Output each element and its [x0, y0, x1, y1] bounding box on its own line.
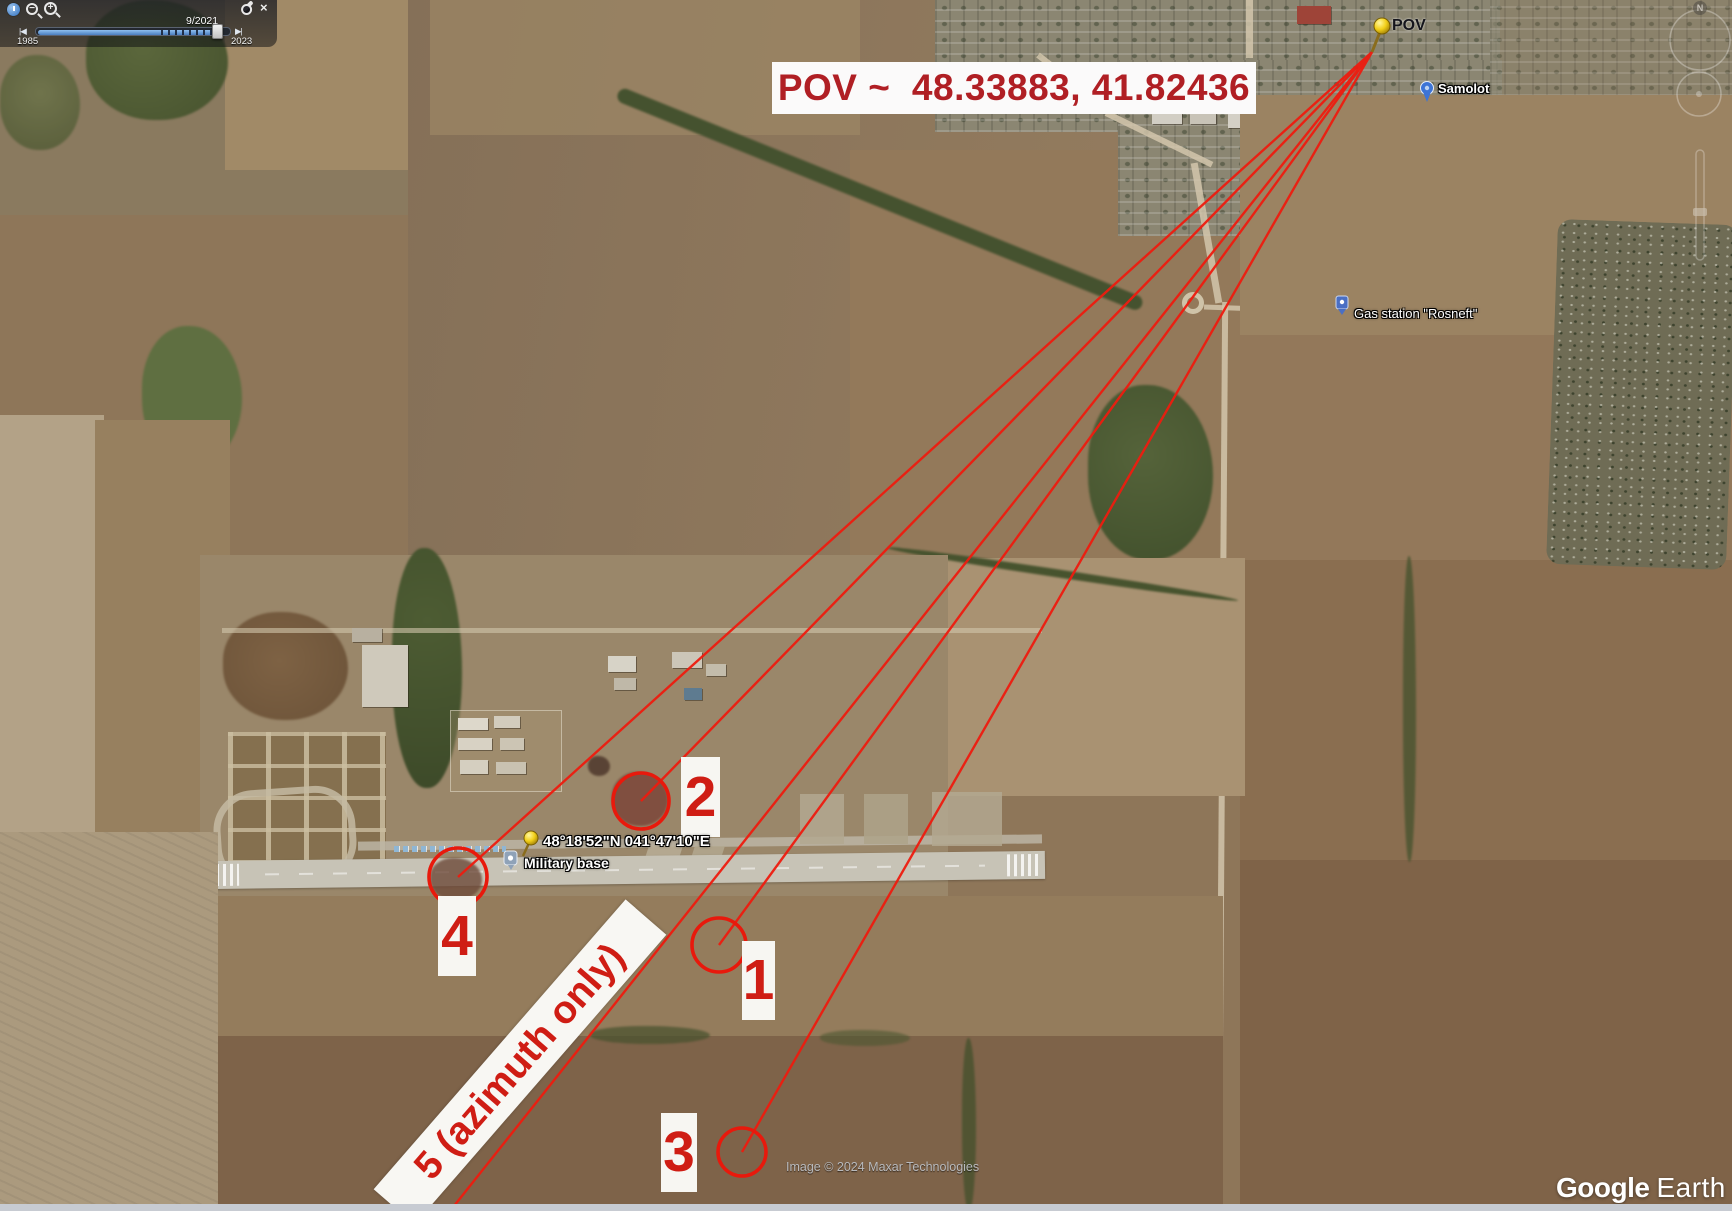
pov-pin-label: POV — [1392, 17, 1426, 35]
pov-coordinates-banner: POV ~ 48.33883, 41.82436 — [772, 62, 1256, 114]
marker-digit: 3 — [663, 1124, 695, 1181]
marker-label-2: 2 — [681, 757, 720, 837]
time-slider-handle[interactable] — [212, 24, 223, 39]
look-ring[interactable] — [1670, 10, 1730, 70]
marker-digit: 1 — [743, 952, 775, 1009]
sightline-5-azimuth — [450, 52, 1372, 1211]
zoom-slider-handle[interactable] — [1693, 208, 1707, 216]
google-earth-logo: GoogleEarth — [1556, 1172, 1726, 1204]
pov-pushpin-icon[interactable] — [1372, 18, 1390, 52]
google-earth-viewport[interactable]: 1 2 3 4 5 (azimuth only) POV ~ 48.33883,… — [0, 0, 1732, 1211]
time-slider-panel: − + × 9/2021 |◀ ▶| 1985 2023 — [0, 0, 277, 47]
wrench-icon[interactable] — [242, 0, 253, 11]
marker-digit: 4 — [441, 908, 473, 965]
annotation-overlay — [0, 0, 1732, 1211]
zoom-in-glyph: + — [48, 2, 54, 13]
north-label: N — [1697, 3, 1704, 13]
time-slider-fill — [38, 30, 216, 35]
zoom-in-icon[interactable]: + — [44, 2, 57, 15]
bottom-edge-strip — [0, 1204, 1732, 1211]
navigation-controls: N — [1652, 0, 1732, 280]
samolot-label[interactable]: Samolot — [1438, 81, 1489, 96]
close-icon[interactable]: × — [260, 0, 268, 15]
zoom-out-icon[interactable]: − — [26, 3, 38, 15]
sightline-4 — [458, 52, 1372, 877]
marker-digit: 2 — [685, 769, 717, 826]
logo-earth: Earth — [1656, 1172, 1725, 1203]
samolot-balloon-icon[interactable] — [1421, 82, 1434, 103]
sightline-1 — [719, 52, 1372, 945]
marker-label-4: 4 — [438, 896, 476, 976]
base-name-label[interactable]: Military base — [524, 855, 609, 871]
gas-station-balloon-icon[interactable] — [1336, 296, 1348, 315]
gas-station-label[interactable]: Gas station "Rosneft" — [1354, 306, 1477, 321]
move-joystick-center[interactable] — [1696, 91, 1702, 97]
zoom-out-glyph: − — [29, 3, 35, 14]
base-coordinates-label[interactable]: 48°18'52"N 041°47'10"E — [543, 833, 710, 850]
time-range-start: 1985 — [17, 36, 38, 47]
marker-label-3: 3 — [661, 1113, 697, 1192]
close-glyph: × — [260, 0, 268, 15]
time-slider-track[interactable] — [35, 27, 231, 36]
base-balloon-icon[interactable] — [504, 851, 517, 870]
marker-label-1: 1 — [742, 941, 775, 1020]
logo-google: Google — [1556, 1172, 1649, 1203]
zoom-slider[interactable] — [1696, 150, 1704, 260]
imagery-attribution: Image © 2024 Maxar Technologies — [786, 1160, 979, 1174]
base-pushpin-icon[interactable] — [523, 831, 538, 856]
clock-icon[interactable] — [7, 3, 20, 16]
time-range-end: 2023 — [231, 36, 252, 47]
